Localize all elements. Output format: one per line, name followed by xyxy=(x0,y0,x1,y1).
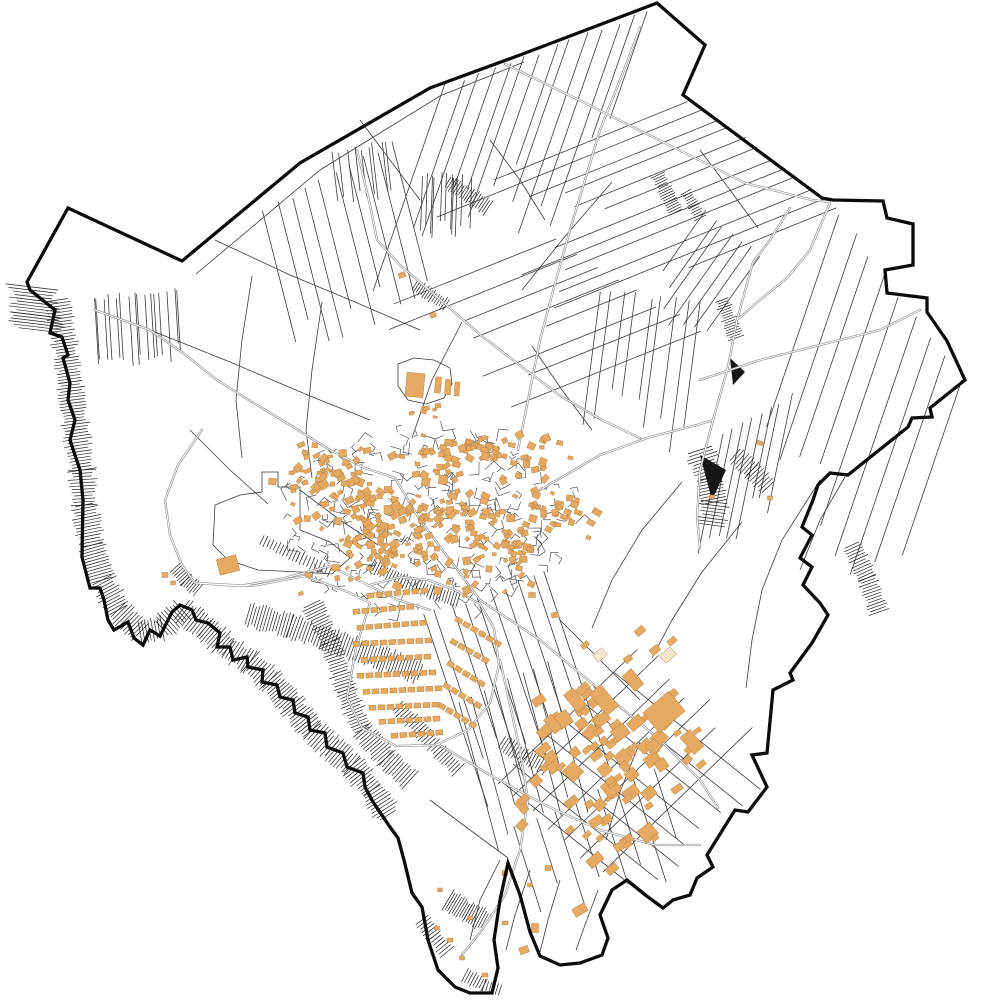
roads-layer xyxy=(95,28,920,955)
dark-parcel-wedges-layer xyxy=(700,358,745,500)
municipal-cadastral-map xyxy=(0,0,1000,1000)
parcel-outlines-layer xyxy=(150,62,845,952)
map-canvas xyxy=(0,0,1000,1000)
buildings-layer xyxy=(162,271,773,977)
